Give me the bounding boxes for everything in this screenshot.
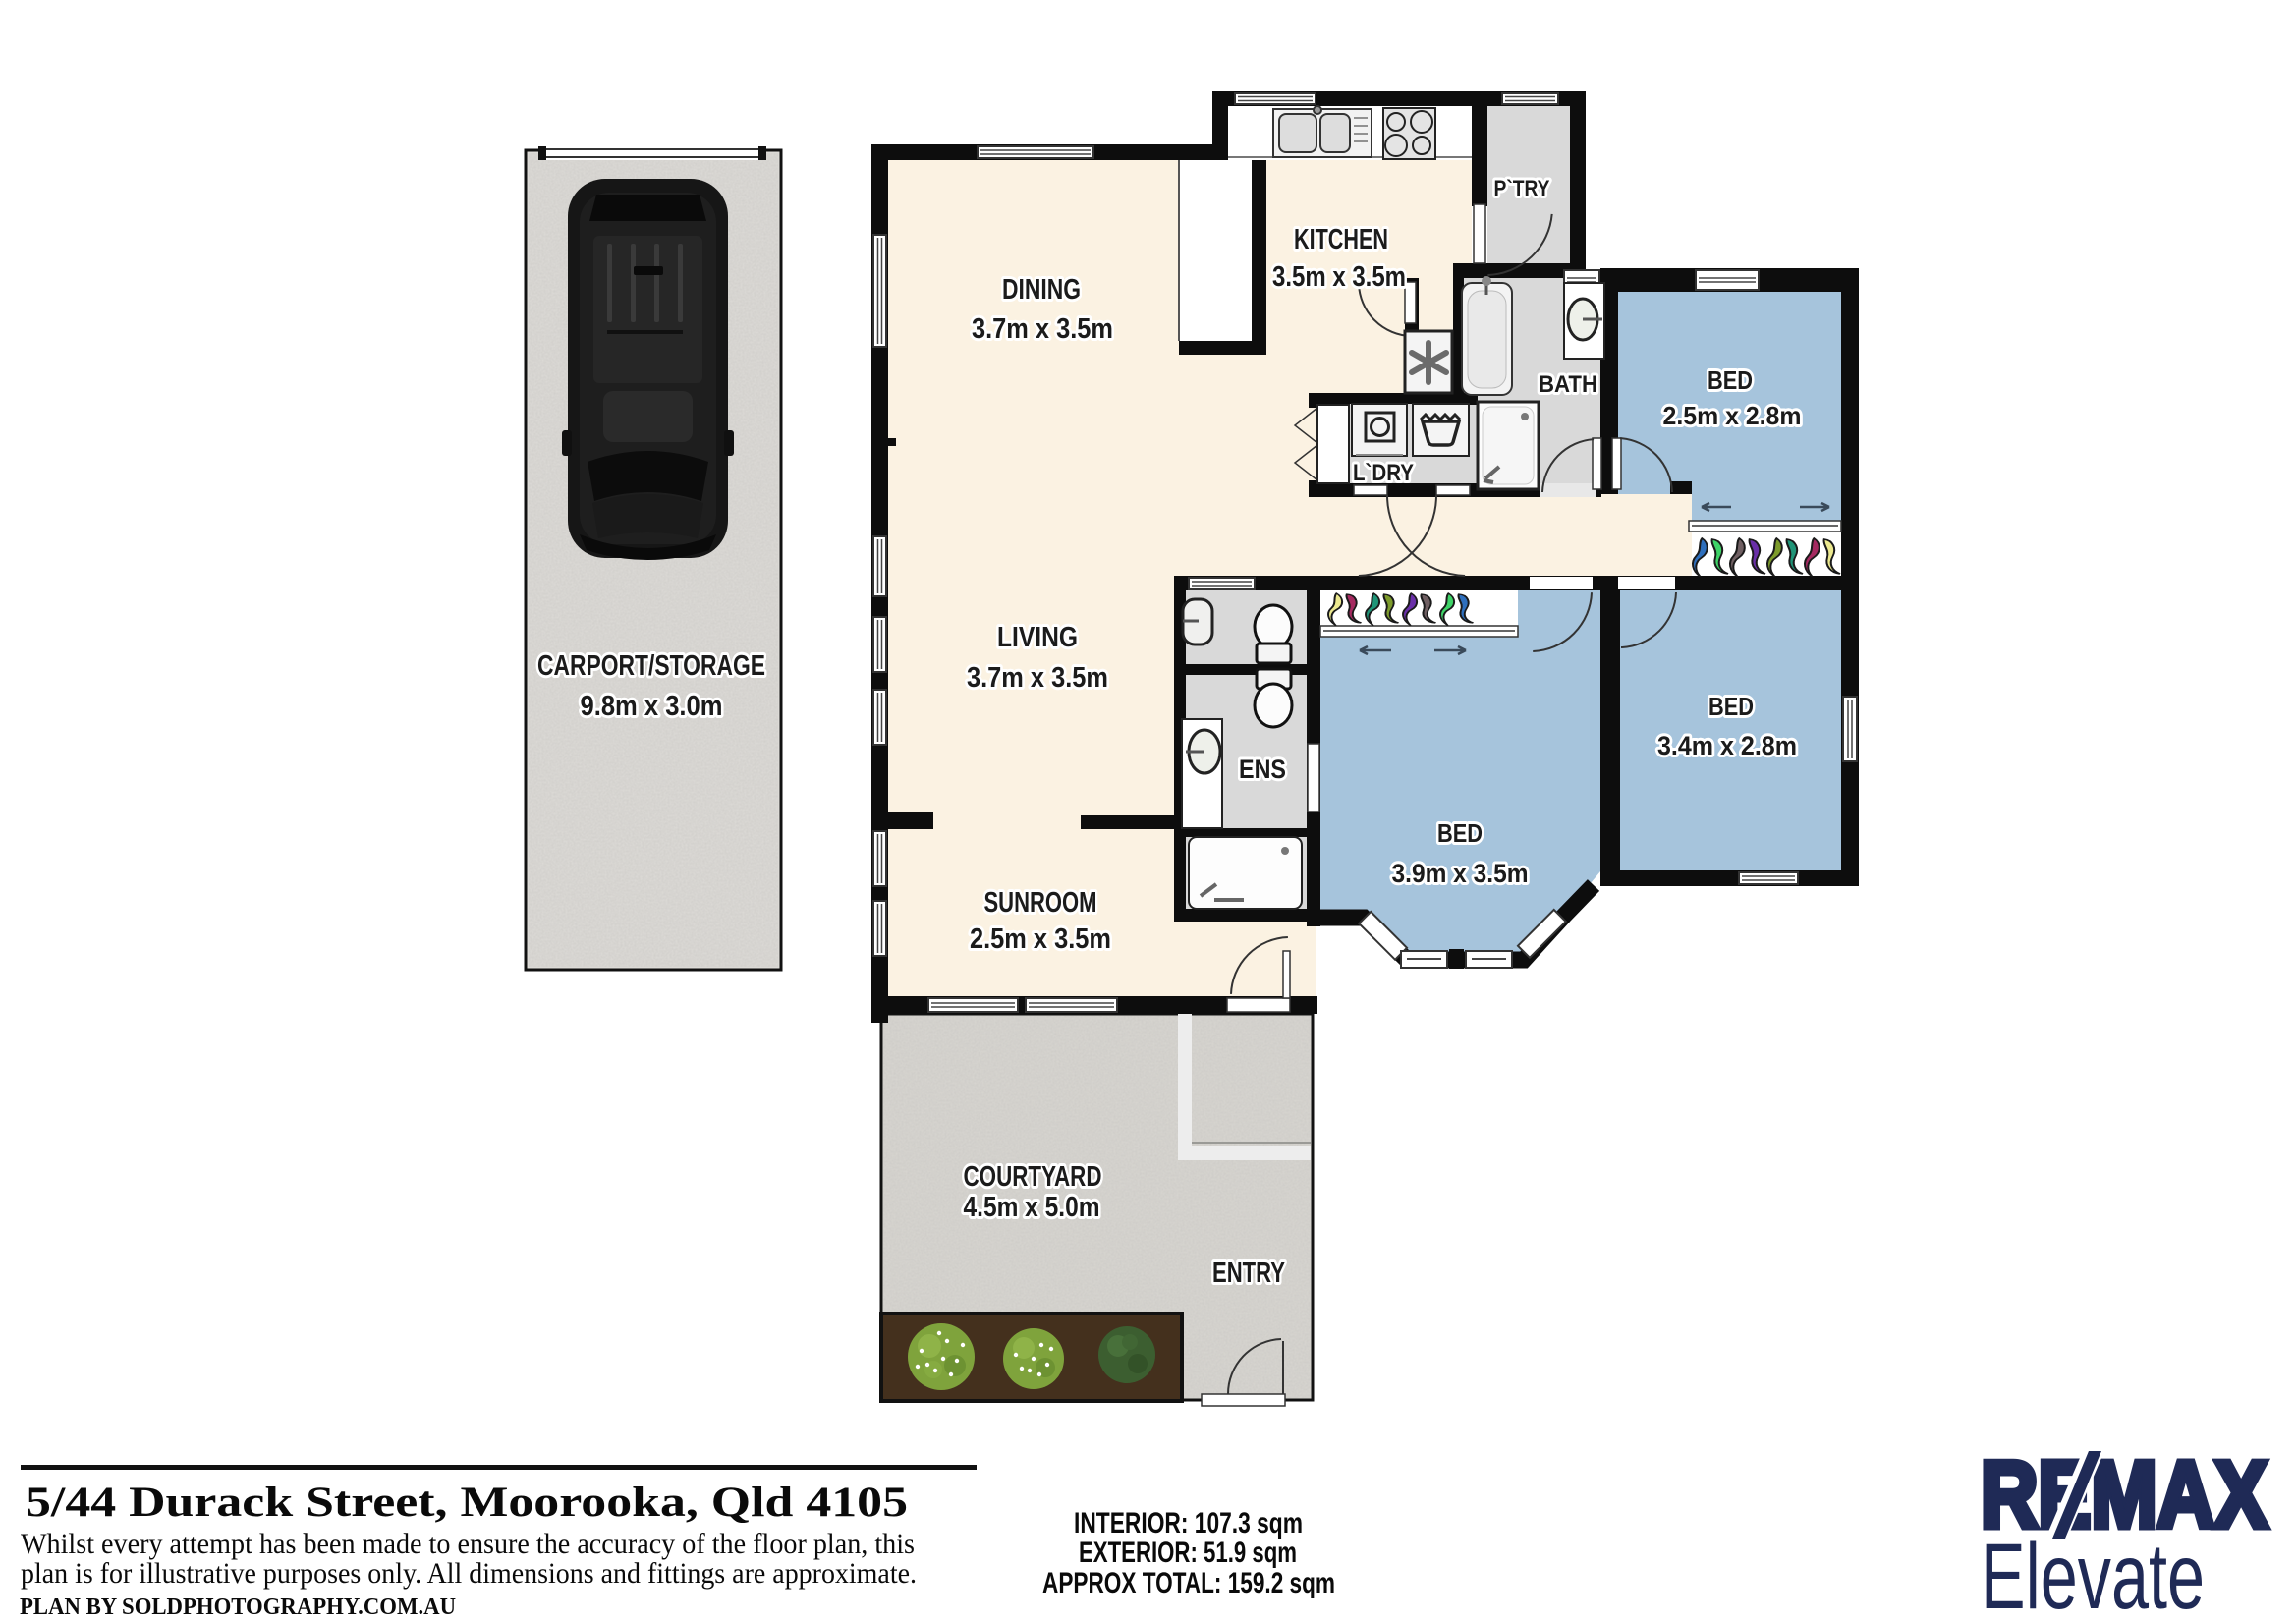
svg-text:EXTERIOR: 51.9 sqm: EXTERIOR: 51.9 sqm bbox=[1079, 1537, 1297, 1569]
svg-text:3.7m x 3.5m: 3.7m x 3.5m bbox=[967, 662, 1108, 694]
svg-text:5/44 Durack Street, Moorooka,: 5/44 Durack Street, Moorooka, Qld 4105 bbox=[26, 1480, 908, 1526]
svg-text:Elevate: Elevate bbox=[1981, 1525, 2205, 1623]
svg-text:DINING: DINING bbox=[1002, 274, 1081, 306]
svg-text:KITCHEN: KITCHEN bbox=[1294, 224, 1388, 255]
svg-text:SUNROOM: SUNROOM bbox=[984, 887, 1097, 919]
svg-text:BED: BED bbox=[1708, 365, 1753, 395]
svg-text:APPROX TOTAL: 159.2 sqm: APPROX TOTAL: 159.2 sqm bbox=[1042, 1567, 1335, 1599]
svg-text:3.7m x 3.5m: 3.7m x 3.5m bbox=[972, 313, 1113, 345]
svg-text:BATH: BATH bbox=[1539, 371, 1597, 398]
svg-text:LIVING: LIVING bbox=[997, 622, 1078, 653]
svg-text:9.8m x 3.0m: 9.8m x 3.0m bbox=[581, 691, 723, 722]
svg-text:INTERIOR: 107.3 sqm: INTERIOR: 107.3 sqm bbox=[1074, 1507, 1303, 1539]
svg-text:plan is for illustrative purpo: plan is for illustrative purposes only. … bbox=[21, 1557, 917, 1590]
svg-text:2.5m x 2.8m: 2.5m x 2.8m bbox=[1663, 401, 1802, 430]
svg-text:L`DRY: L`DRY bbox=[1353, 460, 1414, 486]
svg-text:3.4m x 2.8m: 3.4m x 2.8m bbox=[1657, 731, 1797, 760]
svg-text:PLAN BY SOLDPHOTOGRAPHY.COM.AU: PLAN BY SOLDPHOTOGRAPHY.COM.AU bbox=[20, 1595, 456, 1620]
svg-text:BED: BED bbox=[1708, 692, 1754, 721]
svg-text:Whilst every attempt has been: Whilst every attempt has been made to en… bbox=[21, 1528, 915, 1560]
svg-text:3.5m x 3.5m: 3.5m x 3.5m bbox=[1272, 261, 1406, 293]
svg-text:3.9m x 3.5m: 3.9m x 3.5m bbox=[1392, 859, 1529, 888]
svg-text:CARPORT/STORAGE: CARPORT/STORAGE bbox=[537, 650, 765, 682]
svg-text:2.5m x 3.5m: 2.5m x 3.5m bbox=[970, 923, 1111, 955]
svg-text:4.5m x 5.0m: 4.5m x 5.0m bbox=[964, 1192, 1100, 1223]
svg-text:P`TRY: P`TRY bbox=[1494, 176, 1550, 200]
svg-text:ENTRY: ENTRY bbox=[1212, 1258, 1285, 1289]
svg-text:ENS: ENS bbox=[1239, 755, 1286, 784]
svg-text:COURTYARD: COURTYARD bbox=[964, 1161, 1102, 1193]
svg-text:BED: BED bbox=[1437, 818, 1483, 848]
